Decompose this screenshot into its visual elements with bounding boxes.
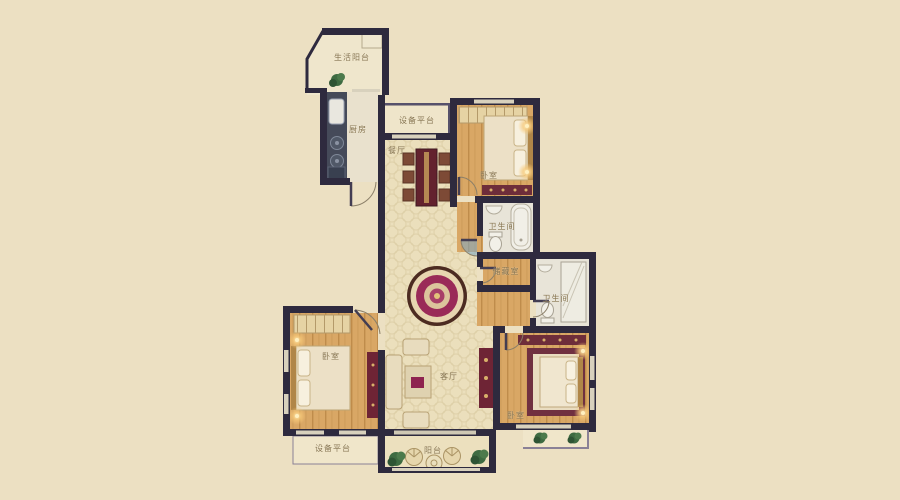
equipment-platform-top-floor	[385, 106, 448, 134]
vestibule-wood-floor	[477, 292, 530, 326]
wardrobe	[294, 315, 350, 333]
toilet	[489, 232, 502, 252]
bedroom-right-furniture	[518, 335, 592, 422]
floor-plan-canvas: 生活阳台 厨房 设备平台 餐厅 卧室 卫生间 储藏室 卫生间 卧室 客厅 卧室 …	[0, 0, 900, 500]
balcony-cabinet	[362, 34, 382, 48]
headboard	[578, 357, 583, 407]
headboard	[291, 346, 296, 410]
armchair	[403, 339, 429, 355]
right-balcony-rail-side	[587, 430, 589, 449]
storage-floor	[483, 259, 530, 285]
kitchen-counter	[327, 92, 347, 182]
armchair	[403, 412, 429, 428]
toilet	[541, 303, 554, 324]
kitchen-sink	[329, 99, 344, 124]
round-rug	[407, 266, 467, 326]
right-balcony-rail	[523, 447, 589, 449]
kitchen-door	[351, 182, 376, 206]
floor-plan-svg	[0, 0, 900, 500]
equipment-platform-bottom-floor	[293, 436, 378, 464]
sofa	[386, 355, 402, 409]
dining-set	[403, 149, 450, 206]
